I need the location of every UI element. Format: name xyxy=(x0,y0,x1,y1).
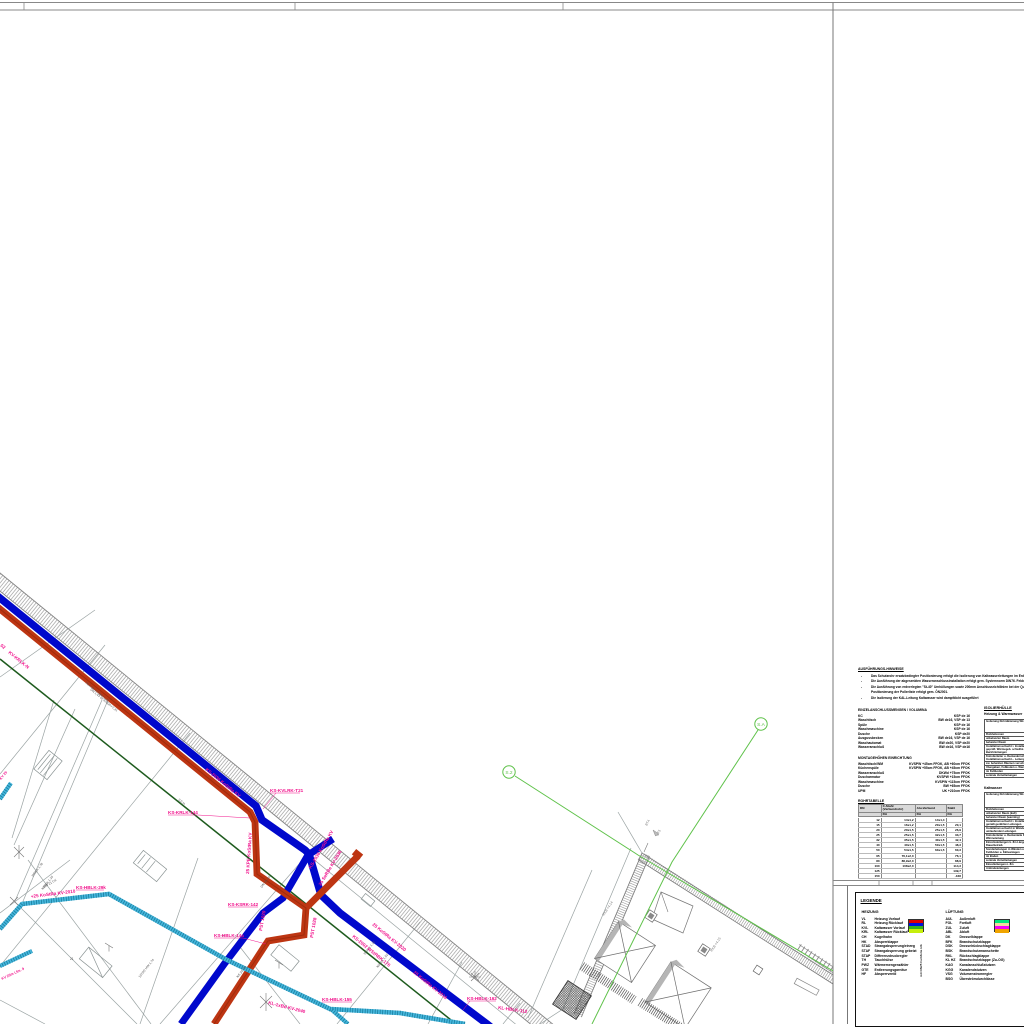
svg-text:PST 1028: PST 1028 xyxy=(309,917,318,938)
svg-text:KS-HBLK-162: KS-HBLK-162 xyxy=(467,996,497,1001)
svg-text:RKB +4,15: RKB +4,15 xyxy=(709,936,721,952)
svg-text:21: 21 xyxy=(70,957,74,961)
svg-text:BT4: BT4 xyxy=(644,819,651,826)
svg-text:S.A: S.A xyxy=(757,722,766,728)
svg-text:KS-KVLRK-T21: KS-KVLRK-T21 xyxy=(270,788,304,793)
svg-text:KS-KRLK-144: KS-KRLK-144 xyxy=(168,810,198,815)
svg-text:KS-HBLK-14a: KS-HBLK-14a xyxy=(214,933,244,938)
svg-text:mit DN25 Farbfolie klb: mit DN25 Farbfolie klb xyxy=(919,944,923,977)
svg-text:KL-1xBd KV-2040: KL-1xBd KV-2040 xyxy=(268,1000,307,1014)
svg-text:KS-HBLK-155: KS-HBLK-155 xyxy=(322,997,352,1002)
svg-text:02: 02 xyxy=(0,643,7,650)
svg-text:S.2: S.2 xyxy=(505,770,513,776)
svg-text:KS-HBLK-29k: KS-HBLK-29k xyxy=(76,885,106,890)
svg-text:25 KoStRa KV-2016: 25 KoStRa KV-2016 xyxy=(412,970,448,1001)
svg-text:25 KPE KoStRa KV: 25 KPE KoStRa KV xyxy=(245,832,253,875)
svg-text:1070/2 HW 1,74: 1070/2 HW 1,74 xyxy=(138,958,155,979)
svg-text:KS-KSRK-142: KS-KSRK-142 xyxy=(228,902,259,907)
svg-text:KV 25m Lfm. 9: KV 25m Lfm. 9 xyxy=(1,967,25,981)
svg-text:WSRK 1,78: WSRK 1,78 xyxy=(31,862,45,878)
